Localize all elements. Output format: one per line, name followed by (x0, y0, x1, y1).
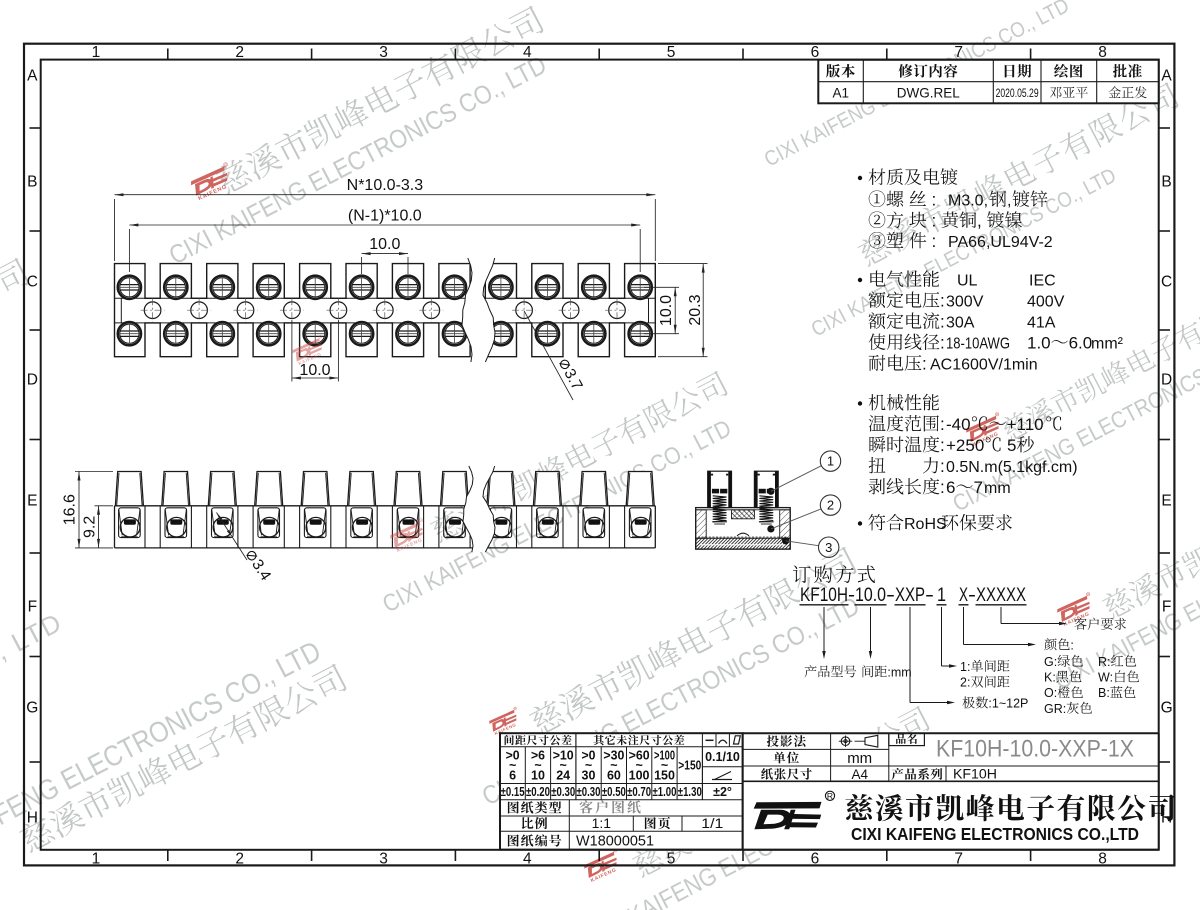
svg-text:±0.70: ±0.70 (627, 785, 651, 799)
svg-text:KF10H: KF10H (800, 585, 848, 606)
svg-text:W:: W: (1098, 671, 1113, 685)
svg-text:30A: 30A (946, 315, 975, 332)
svg-text:±2°: ±2° (713, 785, 732, 799)
svg-text:E: E (27, 493, 37, 510)
svg-text:5: 5 (667, 851, 676, 868)
svg-text::: : (940, 478, 945, 497)
svg-text:0.5N.m(5.1kgf.cm): 0.5N.m(5.1kgf.cm) (946, 459, 1078, 476)
svg-text:±0.30: ±0.30 (577, 785, 601, 799)
svg-text:RoHS: RoHS (904, 516, 947, 533)
svg-text:XXP: XXP (895, 585, 925, 606)
svg-text:2:: 2: (960, 676, 970, 690)
svg-text::mm: :mm (887, 665, 911, 679)
svg-text:R: R (827, 791, 833, 801)
svg-text:G:: G: (1044, 655, 1057, 669)
svg-text:5: 5 (667, 44, 676, 61)
svg-text:41A: 41A (1027, 315, 1056, 332)
svg-text:1.0: 1.0 (1027, 334, 1051, 353)
svg-text:H: H (27, 810, 38, 827)
svg-text::1~12P: :1~12P (988, 697, 1028, 711)
svg-text::: : (922, 355, 927, 374)
svg-text::: : (940, 334, 945, 353)
svg-text::: : (940, 292, 945, 311)
svg-text::: : (1070, 638, 1073, 652)
svg-text:1:1: 1:1 (592, 815, 612, 831)
svg-text:3: 3 (825, 540, 832, 555)
svg-text:W18000051: W18000051 (576, 832, 654, 849)
svg-text:K:: K: (1044, 671, 1056, 685)
svg-text:G: G (1161, 700, 1173, 717)
svg-text:7: 7 (954, 851, 963, 868)
svg-text:A: A (27, 68, 38, 85)
svg-text:100: 100 (629, 768, 650, 782)
svg-text::: : (927, 212, 941, 231)
svg-text:1: 1 (827, 454, 834, 469)
svg-text:KF10H-10.0-XXP-1X: KF10H-10.0-XXP-1X (936, 736, 1134, 763)
svg-text:B: B (27, 174, 37, 191)
svg-text:1: 1 (92, 44, 101, 61)
svg-text:N*10.0-3.3: N*10.0-3.3 (347, 177, 424, 194)
svg-text:(N-1)*10.0: (N-1)*10.0 (348, 208, 422, 225)
svg-text:-40: -40 (946, 415, 971, 434)
svg-text:GR:: GR: (1044, 702, 1066, 716)
svg-text:-: - (886, 585, 895, 606)
svg-text:6.0: 6.0 (1069, 334, 1093, 353)
svg-text:-: - (968, 585, 976, 606)
svg-text:B: B (1161, 174, 1171, 191)
svg-text:A1: A1 (833, 85, 850, 100)
svg-text:10.0: 10.0 (299, 362, 330, 379)
svg-text:±1.00: ±1.00 (653, 785, 677, 799)
svg-text:C: C (27, 274, 38, 291)
svg-text:-: - (925, 585, 934, 606)
svg-text:C: C (1161, 274, 1172, 291)
svg-text:E: E (1161, 493, 1171, 510)
svg-text:10.0: 10.0 (658, 295, 675, 326)
svg-text:±0.50: ±0.50 (602, 785, 626, 799)
svg-text:-: - (848, 585, 855, 606)
svg-text:24: 24 (556, 768, 570, 782)
svg-text:PA66,UL94V-2: PA66,UL94V-2 (948, 234, 1053, 251)
svg-text:6: 6 (811, 851, 820, 868)
svg-text:30: 30 (582, 768, 596, 782)
svg-text:,: , (1007, 193, 1011, 210)
svg-text:F: F (1162, 599, 1171, 616)
svg-text:XXXXX: XXXXX (976, 585, 1026, 606)
svg-text:18-10AWG: 18-10AWG (946, 336, 1010, 353)
svg-text:1:: 1: (960, 660, 970, 674)
svg-text:UL: UL (957, 273, 978, 290)
svg-text:F: F (28, 599, 37, 616)
svg-text:G: G (26, 700, 38, 717)
svg-text:1: 1 (92, 851, 101, 868)
svg-text:X: X (959, 585, 968, 606)
svg-text:8: 8 (1098, 851, 1107, 868)
svg-text:4: 4 (523, 44, 532, 61)
svg-text:+250: +250 (946, 436, 984, 455)
svg-text:150: 150 (654, 768, 675, 782)
svg-text:M3.0,: M3.0, (948, 193, 988, 210)
svg-text:9.2: 9.2 (82, 516, 99, 538)
svg-text:1/1: 1/1 (701, 815, 723, 831)
svg-text:A4: A4 (851, 767, 868, 782)
svg-text:4: 4 (523, 851, 532, 868)
svg-text:3: 3 (379, 44, 388, 61)
svg-text::: : (940, 457, 945, 476)
svg-text:20.3: 20.3 (687, 294, 704, 325)
svg-text:2020.05.29: 2020.05.29 (996, 86, 1039, 100)
svg-text:2: 2 (235, 851, 244, 868)
svg-text::: : (927, 191, 941, 210)
svg-text:10.0: 10.0 (369, 236, 400, 253)
svg-text:±0.20: ±0.20 (526, 785, 550, 799)
svg-text:7: 7 (974, 478, 983, 497)
svg-text:6: 6 (509, 768, 516, 782)
svg-text:D: D (27, 372, 38, 389)
svg-text:5: 5 (1002, 436, 1016, 455)
svg-text::: : (927, 232, 941, 251)
svg-text:AC1600V/1min: AC1600V/1min (930, 357, 1038, 374)
svg-text:10.0: 10.0 (855, 585, 886, 606)
svg-text:400V: 400V (1027, 294, 1065, 311)
svg-text:±1.30: ±1.30 (678, 785, 702, 799)
svg-text:D: D (1161, 372, 1172, 389)
svg-text::: : (940, 415, 945, 434)
svg-text:2: 2 (827, 498, 834, 513)
svg-text::: : (940, 313, 945, 332)
svg-text:mm: mm (847, 750, 872, 767)
svg-text:+110: +110 (1007, 415, 1044, 434)
svg-text:CIXI KAIFENG ELECTRONICS CO.,L: CIXI KAIFENG ELECTRONICS CO.,LTD (851, 824, 1139, 844)
svg-text:B:: B: (1098, 686, 1110, 700)
svg-text:6: 6 (811, 44, 820, 61)
svg-text:DWG.REL: DWG.REL (897, 85, 960, 101)
svg-text:O:: O: (1044, 686, 1057, 700)
svg-text:IEC: IEC (1029, 273, 1056, 290)
svg-text::: : (940, 436, 945, 455)
svg-text:R:: R: (1098, 655, 1111, 669)
svg-text:,: , (977, 212, 987, 231)
svg-text:3: 3 (379, 851, 388, 868)
svg-text:6: 6 (946, 478, 955, 497)
svg-text:±0.15: ±0.15 (501, 785, 525, 799)
svg-text:7: 7 (954, 44, 963, 61)
svg-text:1: 1 (937, 585, 946, 606)
svg-text:>150: >150 (678, 759, 701, 773)
svg-text:10: 10 (531, 768, 545, 782)
svg-text:0.1/10: 0.1/10 (705, 750, 740, 764)
svg-text:2: 2 (235, 44, 244, 61)
svg-text:KF10H: KF10H (953, 767, 997, 782)
svg-text:±0.30: ±0.30 (551, 785, 575, 799)
svg-text:300V: 300V (946, 294, 984, 311)
svg-text:8: 8 (1098, 44, 1107, 61)
svg-text:60: 60 (607, 768, 621, 782)
svg-text:mm: mm (984, 480, 1011, 497)
svg-text:A: A (1161, 68, 1172, 85)
svg-text:16.6: 16.6 (62, 494, 79, 525)
svg-text:mm²: mm² (1091, 336, 1124, 353)
